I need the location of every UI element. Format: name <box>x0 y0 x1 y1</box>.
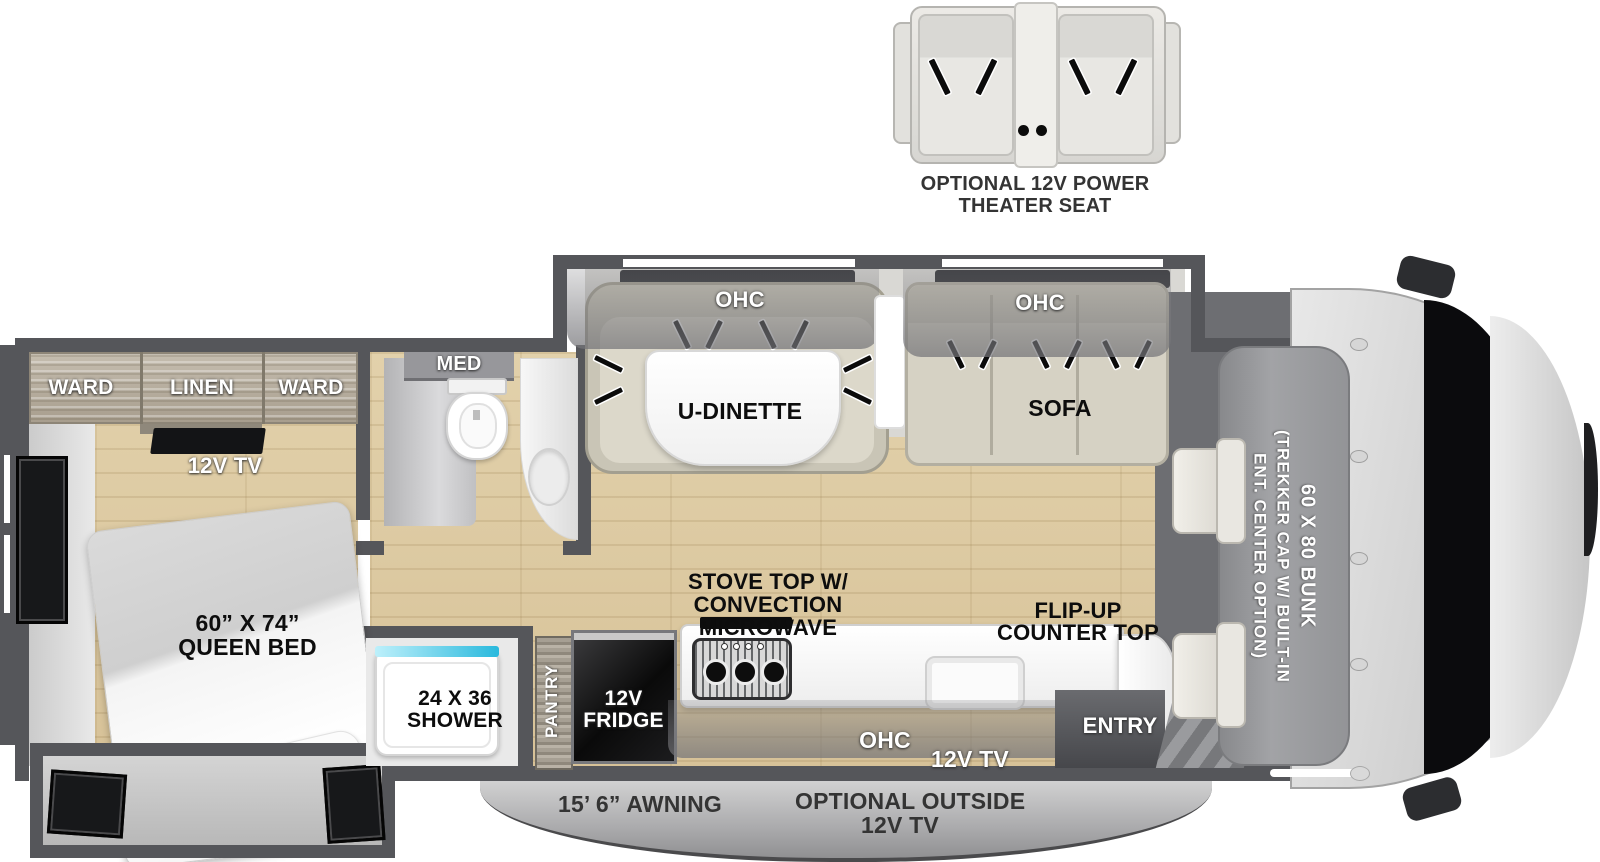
mirror-icon <box>1400 775 1463 823</box>
shower-glass <box>375 646 499 657</box>
flip-up-counter-label: FLIP-UP COUNTER TOP <box>978 600 1178 644</box>
window <box>16 456 68 624</box>
pantry-label: PANTRY <box>535 638 569 764</box>
stove-top-icon <box>692 638 792 700</box>
awning-label: 15’ 6” AWNING <box>545 792 735 816</box>
burner-icon <box>703 659 729 685</box>
sofa-label: SOFA <box>1000 396 1120 420</box>
wall <box>15 338 560 352</box>
slide-topper <box>942 259 1163 267</box>
end-table <box>874 295 906 429</box>
hood <box>1490 316 1590 758</box>
wall <box>553 255 567 352</box>
wall <box>352 626 532 638</box>
wall <box>356 541 384 555</box>
shower-label: 24 X 36 SHOWER <box>400 688 510 732</box>
hinge-icon <box>1350 766 1370 781</box>
recline-mark-icon <box>1075 52 1131 96</box>
recline-mark-icon <box>588 358 624 402</box>
fridge-top <box>574 633 674 640</box>
slide-topper <box>1270 769 1355 777</box>
burner-icon <box>761 659 787 685</box>
u-dinette-label: U-DINETTE <box>650 399 830 423</box>
entry-label: ENTRY <box>1060 714 1180 737</box>
hinge-icon <box>1350 658 1368 671</box>
theater-seat-label: OPTIONAL 12V POWER THEATER SEAT <box>875 173 1195 217</box>
theater-seat <box>890 0 1182 168</box>
front-bumper <box>1584 423 1598 556</box>
med-cabinet-label: MED <box>404 354 514 375</box>
dinette-ohc-label: OHC <box>680 288 800 311</box>
knob-icon <box>721 643 728 650</box>
linen-label: LINEN <box>143 377 261 399</box>
ward-right-label: WARD <box>265 377 357 399</box>
fridge-label: 12V FRIDGE <box>566 688 681 732</box>
bedroom-slide <box>30 743 395 858</box>
theater-seat-console <box>1014 2 1058 168</box>
cupholder-icon <box>1018 125 1029 136</box>
window <box>47 769 127 838</box>
bedroom-tv-label: 12V TV <box>155 454 295 477</box>
toilet <box>446 392 508 460</box>
floorplan: OPTIONAL 12V POWER THEATER SEAT 15’ 6” A… <box>0 0 1600 862</box>
ward-left-label: WARD <box>25 377 137 399</box>
hinge-icon <box>1350 450 1368 463</box>
stove-label: STOVE TOP W/ CONVECTION MICROWAVE <box>668 570 868 639</box>
hinge-icon <box>1350 338 1368 351</box>
hinge-icon <box>1350 552 1368 565</box>
knob-icon <box>745 643 752 650</box>
wall <box>352 766 1356 781</box>
outside-tv-label: OPTIONAL OUTSIDE 12V TV <box>795 789 1005 837</box>
kitchen-tv-label: 12V TV <box>905 747 1035 771</box>
wall <box>518 626 533 766</box>
wall <box>563 541 591 555</box>
mirror-icon <box>1395 254 1458 301</box>
cupholder-icon <box>1036 125 1047 136</box>
slide-topper <box>4 455 10 523</box>
burner-icon <box>732 659 758 685</box>
slide-topper <box>623 259 855 267</box>
sofa-ohc-label: OHC <box>985 291 1095 314</box>
cab-seat-back <box>1216 622 1246 728</box>
knob-icon <box>757 643 764 650</box>
cab-seat-back <box>1216 438 1246 544</box>
recline-mark-icon <box>935 52 991 96</box>
slide-topper <box>4 535 10 613</box>
toilet-flush-button <box>473 410 480 420</box>
bathroom-sink <box>528 448 570 506</box>
recline-mark-icon <box>842 358 878 402</box>
wall <box>356 338 370 520</box>
knob-icon <box>733 643 740 650</box>
queen-bed-label: 60” X 74” QUEEN BED <box>150 611 345 659</box>
bedroom-tv <box>150 428 266 454</box>
window <box>322 764 385 844</box>
